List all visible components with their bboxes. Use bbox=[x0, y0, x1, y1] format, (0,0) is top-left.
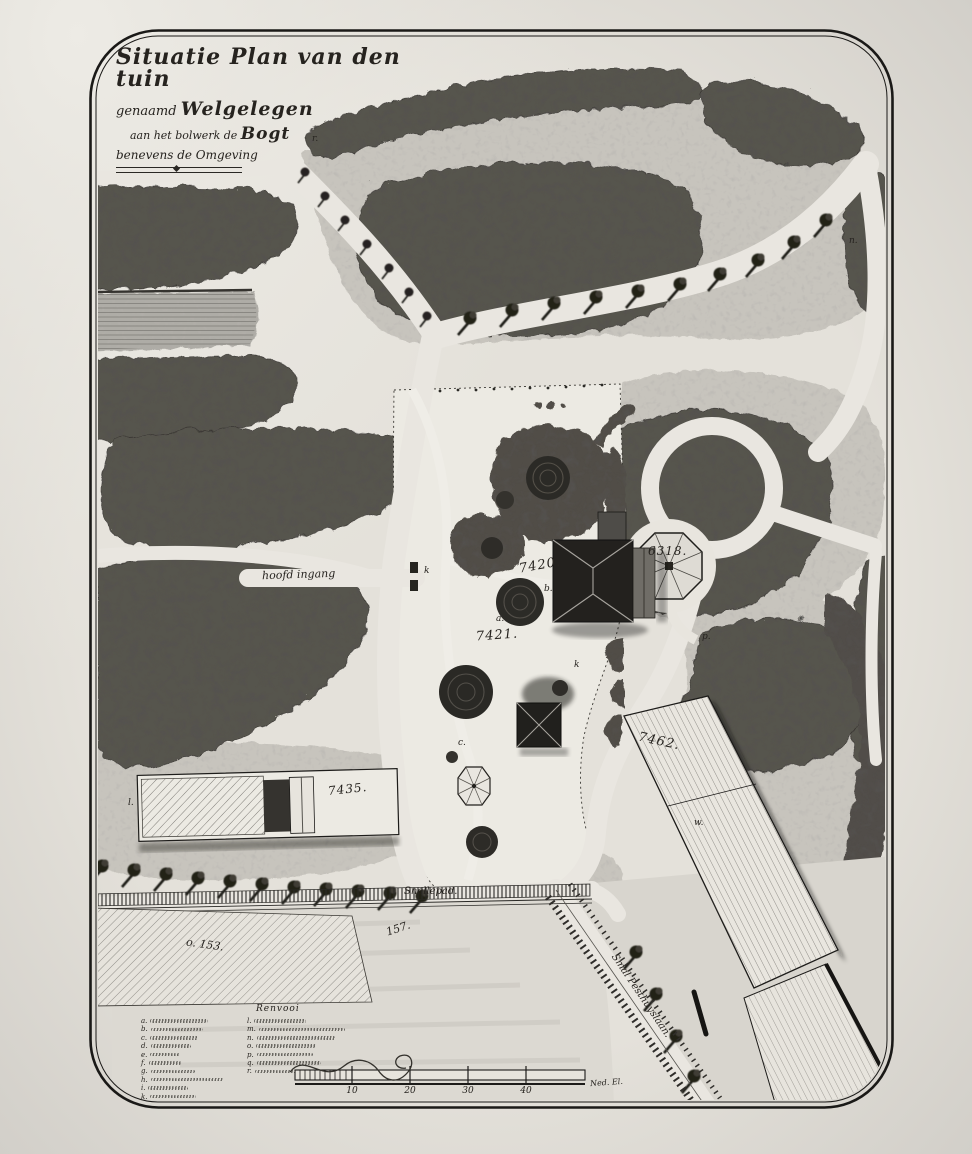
map-artwork bbox=[0, 0, 972, 1154]
water-pond bbox=[92, 290, 256, 350]
gazebo-octagon bbox=[458, 767, 490, 805]
small-house bbox=[517, 703, 568, 756]
map-canvas: Situatie Plan van den tuin genaamd Welge… bbox=[0, 0, 972, 1154]
hatched-field-153 bbox=[92, 908, 372, 1006]
